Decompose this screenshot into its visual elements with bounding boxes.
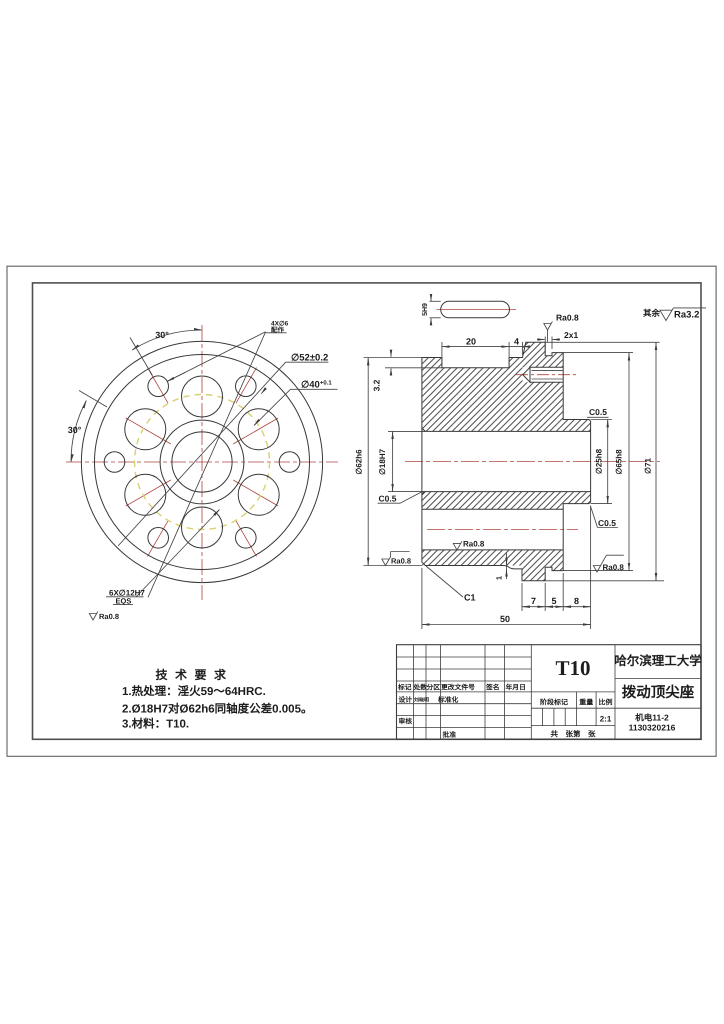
svg-text:哈尔滨理工大学: 哈尔滨理工大学 — [614, 654, 702, 668]
svg-text:标记: 标记 — [397, 684, 412, 692]
svg-text:2x1: 2x1 — [564, 330, 578, 340]
svg-text:共 张第 张: 共 张第 张 — [551, 730, 596, 739]
svg-text:C0.5: C0.5 — [598, 518, 616, 528]
svg-text:机电11-2: 机电11-2 — [635, 713, 669, 723]
svg-text:50: 50 — [500, 614, 510, 624]
svg-text:批准: 批准 — [443, 731, 457, 739]
svg-text:C0.5: C0.5 — [379, 494, 397, 504]
svg-text:Ra0.8: Ra0.8 — [603, 563, 625, 572]
svg-text:分区: 分区 — [427, 684, 441, 692]
svg-text:2:1: 2:1 — [600, 715, 612, 724]
svg-text:3.材料：T10.: 3.材料：T10. — [122, 718, 189, 731]
svg-text:刘晓明: 刘晓明 — [414, 697, 429, 704]
svg-text:设计: 设计 — [399, 696, 413, 704]
svg-text:年月日: 年月日 — [506, 684, 526, 692]
svg-text:8: 8 — [574, 596, 579, 606]
svg-text:∅25h8: ∅25h8 — [595, 448, 604, 474]
svg-text:技术要求: 技术要求 — [155, 668, 233, 682]
svg-text:1130320216: 1130320216 — [629, 723, 676, 733]
svg-text:∅62h6: ∅62h6 — [355, 449, 364, 475]
svg-text:4: 4 — [514, 336, 519, 346]
svg-text:1: 1 — [495, 576, 504, 580]
svg-text:C1: C1 — [464, 593, 476, 603]
svg-text:Ra0.8: Ra0.8 — [391, 557, 411, 566]
svg-text:Ra3.2: Ra3.2 — [674, 310, 699, 321]
svg-text:签名: 签名 — [485, 684, 500, 692]
svg-text:5: 5 — [551, 596, 556, 606]
svg-text:Ra0.8: Ra0.8 — [556, 313, 579, 323]
svg-text:30°: 30° — [68, 425, 82, 435]
svg-text:Ra0.8: Ra0.8 — [99, 612, 119, 621]
svg-text:30°: 30° — [155, 330, 169, 340]
svg-text:∅65h8: ∅65h8 — [615, 449, 624, 475]
svg-text:∅71: ∅71 — [644, 458, 653, 474]
svg-text:7: 7 — [531, 596, 536, 606]
svg-text:标准化: 标准化 — [437, 696, 459, 704]
svg-text:20: 20 — [466, 336, 476, 346]
svg-text:审核: 审核 — [399, 718, 413, 726]
svg-text:重量: 重量 — [579, 698, 593, 707]
svg-text:更改文件号: 更改文件号 — [441, 684, 475, 692]
svg-text:3.2: 3.2 — [372, 379, 382, 391]
svg-text:其余: 其余 — [643, 308, 661, 318]
svg-text:∅18H7: ∅18H7 — [378, 448, 387, 475]
svg-text:处数: 处数 — [413, 684, 428, 692]
svg-text:比例: 比例 — [599, 698, 613, 707]
svg-text:阶段标记: 阶段标记 — [540, 698, 568, 707]
svg-text:EQS: EQS — [116, 596, 132, 605]
svg-text:拨动顶尖座: 拨动顶尖座 — [622, 684, 695, 701]
svg-text:C0.5: C0.5 — [589, 407, 607, 417]
svg-text:5H9: 5H9 — [422, 303, 429, 316]
svg-text:T10: T10 — [555, 656, 590, 680]
svg-text:Ra0.8: Ra0.8 — [463, 540, 485, 549]
svg-text:2.Ø18H7对Ø62h6同轴度公差0.005。: 2.Ø18H7对Ø62h6同轴度公差0.005。 — [122, 703, 312, 716]
svg-text:1.热处理：淫火59～64HRC.: 1.热处理：淫火59～64HRC. — [122, 685, 266, 698]
